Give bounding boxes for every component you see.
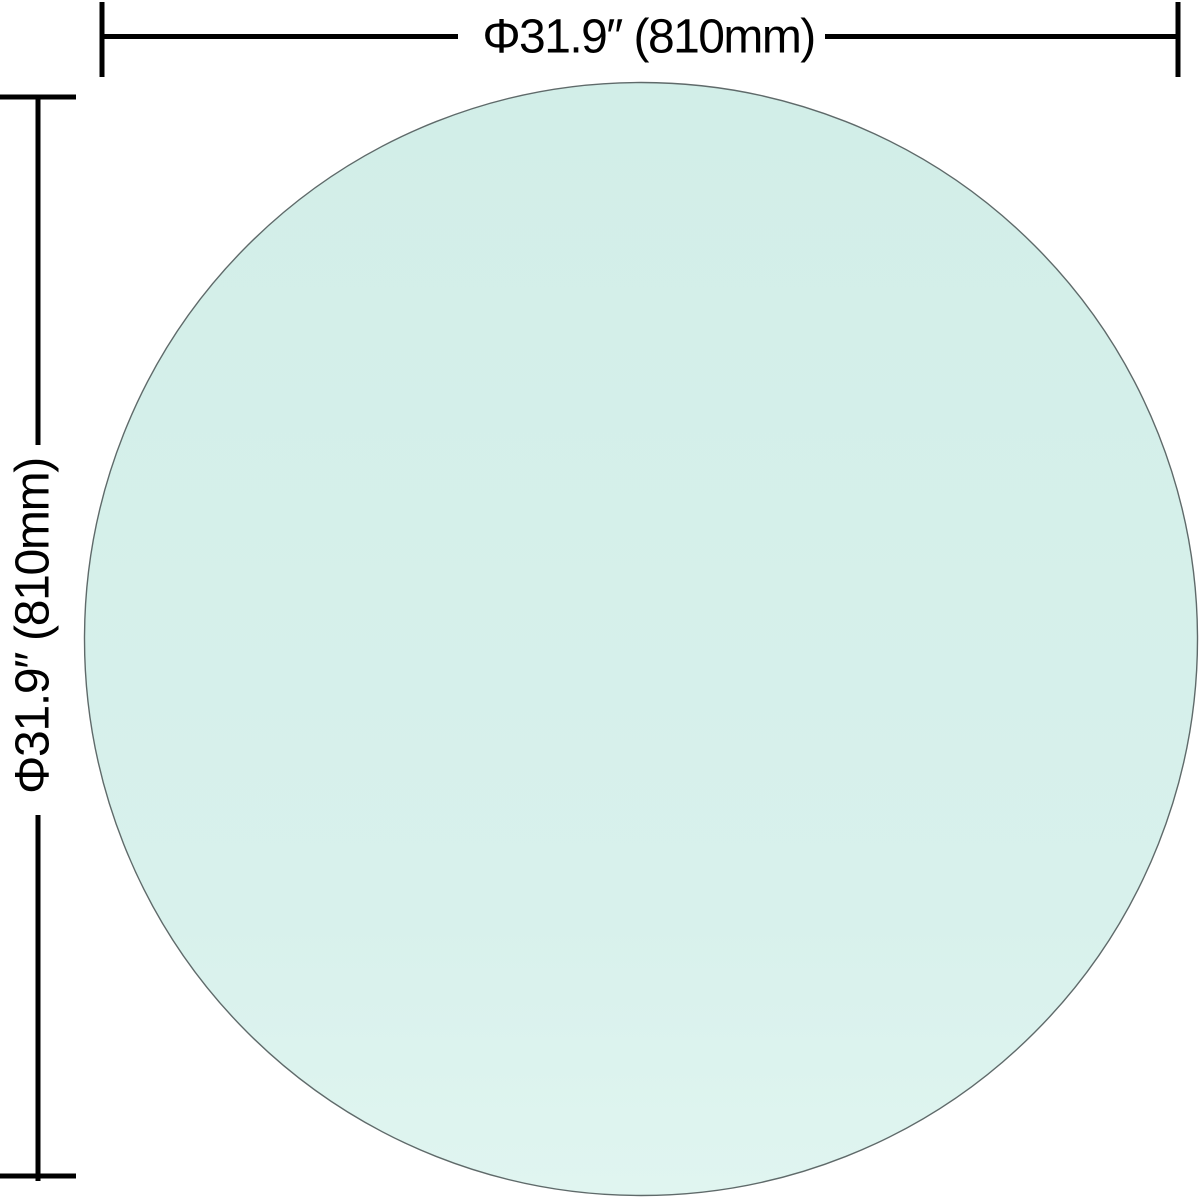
svg-text:Φ31.9″ (810mm): Φ31.9″ (810mm) [7,458,60,794]
svg-text:Φ31.9″ (810mm): Φ31.9″ (810mm) [482,11,814,64]
